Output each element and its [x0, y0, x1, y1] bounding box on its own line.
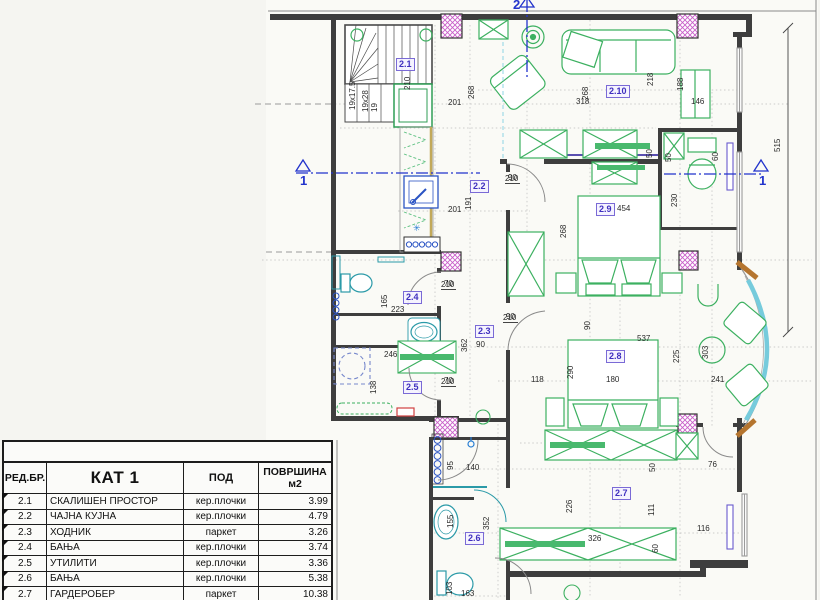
- row-number: 2.2: [4, 510, 47, 525]
- row-flooring: кер.плочки: [184, 556, 259, 571]
- row-number: 2.7: [4, 587, 47, 600]
- row-room-name: ГАРДЕРОБЕР: [47, 587, 184, 600]
- toilet-24: [341, 274, 372, 292]
- table-spacer: [4, 442, 331, 461]
- utility-closet: [398, 341, 456, 373]
- row-room-name: БАЊА: [47, 541, 184, 556]
- radiator: [727, 143, 733, 190]
- floor-plan-sheet: 21019x17.519x281920126820119126831821818…: [0, 0, 820, 600]
- header-number: РЕД.БР.: [4, 463, 47, 493]
- table-row: 2.4БАЊАкер.плочки3.74: [4, 540, 331, 556]
- row-room-name: ХОДНИК: [47, 525, 184, 540]
- row-flooring: паркет: [184, 587, 259, 600]
- row-area: 4.79: [259, 510, 331, 525]
- revision-triangle: [2, 586, 9, 593]
- revision-triangle: [2, 555, 9, 562]
- revision-triangle: [2, 571, 9, 578]
- closet-strip-top: [545, 430, 677, 460]
- toilet-tank: [688, 138, 716, 152]
- row-area: 3.26: [259, 525, 331, 540]
- row-flooring: кер.плочки: [184, 572, 259, 587]
- row-number: 2.1: [4, 494, 47, 509]
- table-row: 2.1СКАЛИШЕН ПРОСТОРкер.плочки3.99: [4, 493, 331, 509]
- row-number: 2.6: [4, 572, 47, 587]
- table-row: 2.5УТИЛИТИкер.плочки3.36: [4, 555, 331, 571]
- header-area: ПОВРШИНА м2: [259, 463, 331, 493]
- row-area: 3.36: [259, 556, 331, 571]
- table-row: 2.6БАЊАкер.плочки5.38: [4, 571, 331, 587]
- revision-triangle: [2, 524, 9, 531]
- row-flooring: паркет: [184, 525, 259, 540]
- row-area: 10.38: [259, 587, 331, 600]
- radiator-2: [727, 505, 733, 549]
- elevator-shaft: [394, 84, 432, 127]
- row-flooring: кер.плочки: [184, 510, 259, 525]
- revision-triangle: [2, 493, 9, 500]
- row-area: 3.74: [259, 541, 331, 556]
- area-table: РЕД.БР. КАТ 1 ПОД ПОВРШИНА м2 2.1СКАЛИШЕ…: [2, 440, 333, 600]
- table-header-row: РЕД.БР. КАТ 1 ПОД ПОВРШИНА м2: [4, 461, 331, 493]
- row-number: 2.5: [4, 556, 47, 571]
- row-area: 5.38: [259, 572, 331, 587]
- toilet-26: [437, 571, 473, 595]
- header-floor-name: КАТ 1: [47, 463, 184, 493]
- table-row: 2.2ЧАЈНА КУЈНАкер.плочки4.79: [4, 509, 331, 525]
- header-flooring: ПОД: [184, 463, 259, 493]
- row-room-name: СКАЛИШЕН ПРОСТОР: [47, 494, 184, 509]
- revision-triangle: [2, 540, 9, 547]
- row-number: 2.3: [4, 525, 47, 540]
- stove: [404, 237, 440, 252]
- row-room-name: БАЊА: [47, 572, 184, 587]
- table-row: 2.3ХОДНИКпаркет3.26: [4, 524, 331, 540]
- row-number: 2.4: [4, 541, 47, 556]
- row-room-name: ЧАЈНА КУЈНА: [47, 510, 184, 525]
- red-appliance: [397, 408, 414, 416]
- table-body: 2.1СКАЛИШЕН ПРОСТОРкер.плочки3.992.2ЧАЈН…: [4, 493, 331, 600]
- row-area: 3.99: [259, 494, 331, 509]
- row-flooring: кер.плочки: [184, 541, 259, 556]
- table-row: 2.7ГАРДЕРОБЕРпаркет10.38: [4, 586, 331, 600]
- row-flooring: кер.плочки: [184, 494, 259, 509]
- revision-triangle: [2, 509, 9, 516]
- row-room-name: УТИЛИТИ: [47, 556, 184, 571]
